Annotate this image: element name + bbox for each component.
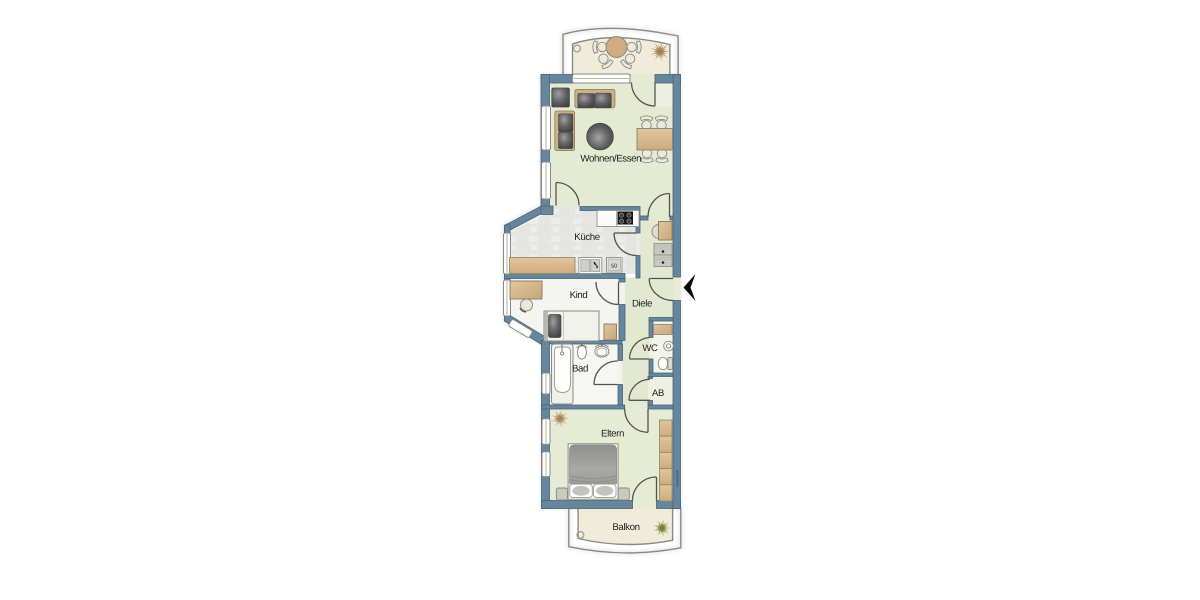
svg-text:WC: WC	[642, 343, 658, 354]
svg-text:www.plan: www.plan	[675, 470, 680, 487]
svg-text:Wohnen/Essen: Wohnen/Essen	[580, 154, 641, 165]
svg-text:50: 50	[611, 264, 617, 270]
svg-text:Balkon: Balkon	[612, 522, 639, 533]
svg-text:Bad: Bad	[572, 364, 588, 375]
svg-text:Kind: Kind	[570, 290, 588, 301]
svg-text:Diele: Diele	[632, 299, 652, 310]
svg-text:Küche: Küche	[574, 232, 599, 243]
svg-text:AB: AB	[652, 388, 664, 399]
svg-text:Eltern: Eltern	[601, 429, 624, 440]
